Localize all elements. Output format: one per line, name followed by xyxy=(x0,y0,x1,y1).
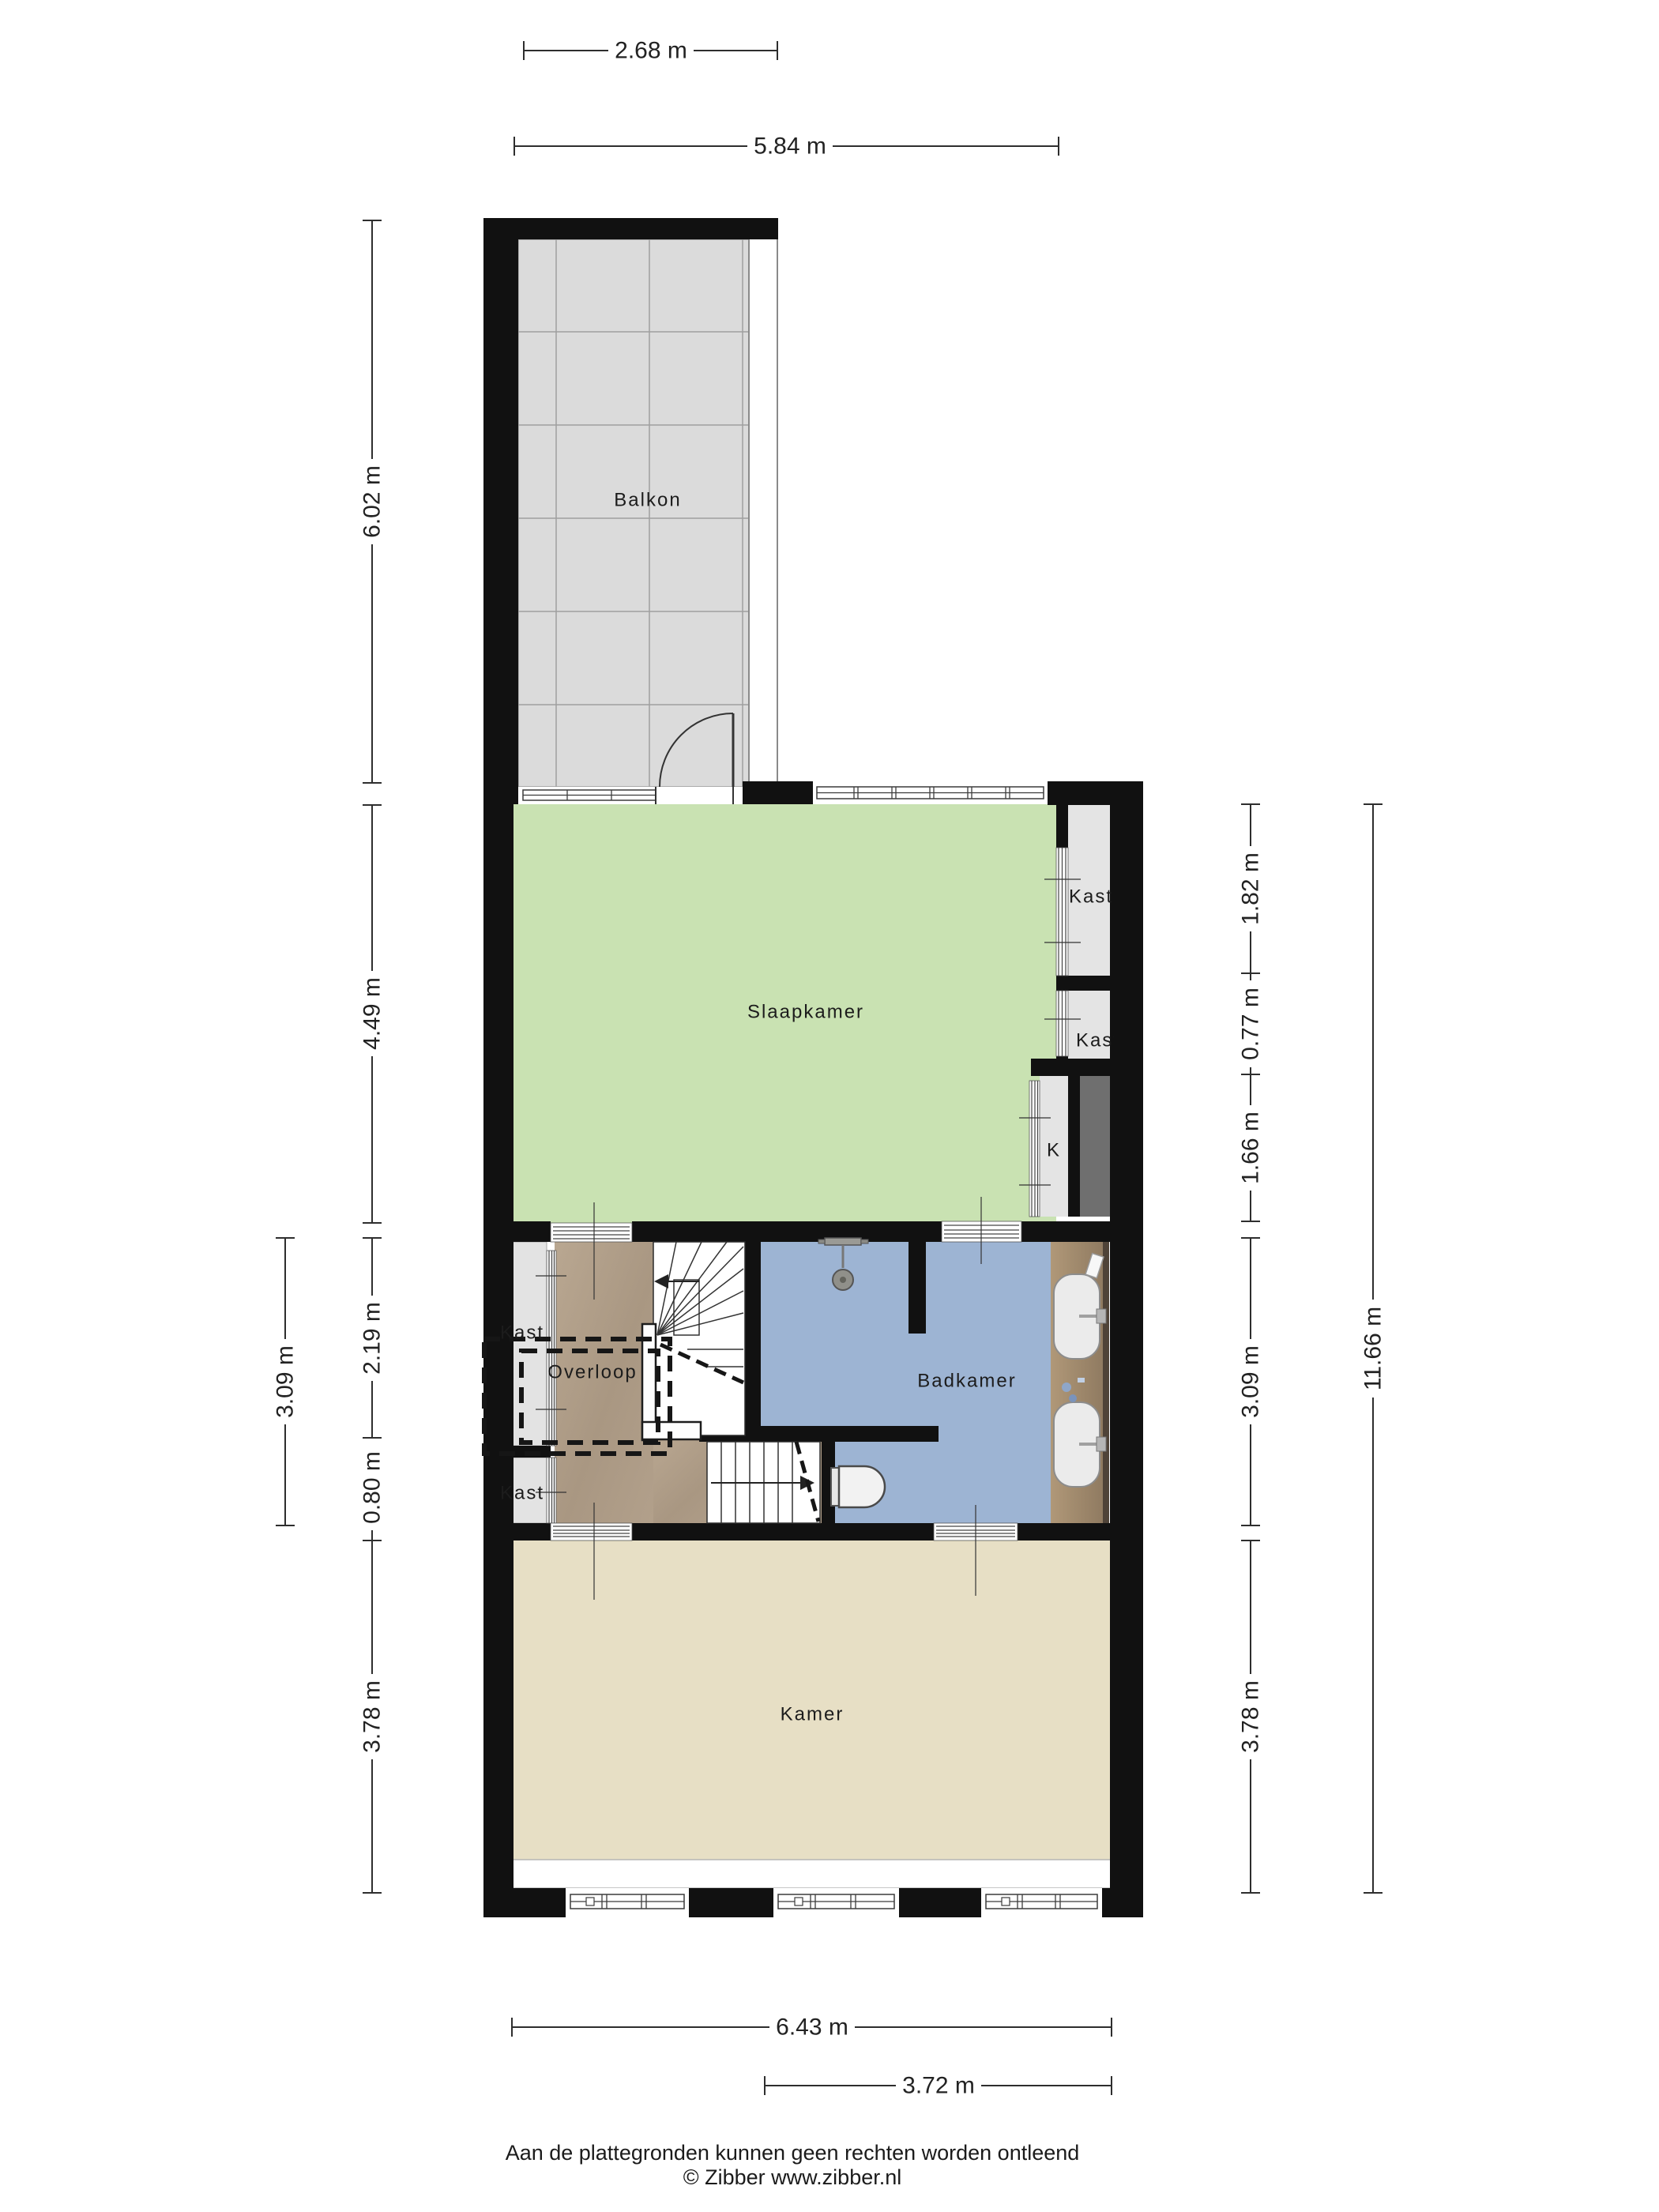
bedroom-north-window xyxy=(813,781,1048,804)
kamer-sill-band xyxy=(512,1860,1112,1888)
sink-bottom-icon xyxy=(1054,1402,1106,1487)
dim-right-bathroom: 3.09 m xyxy=(1238,1345,1264,1418)
footer-copyright: © Zibber www.zibber.nl xyxy=(683,2165,902,2189)
dim-bottom-total: 6.43 m xyxy=(776,2014,848,2041)
dim-left-bedroom: 4.49 m xyxy=(359,977,386,1050)
balcony-railing xyxy=(749,234,777,787)
floor-plan-svg: Balkon Slaapkamer Kast Kast K Kast Overl… xyxy=(0,0,1659,2212)
dim-left-balcony: 6.02 m xyxy=(359,465,386,538)
dim-top-balcony: 2.68 m xyxy=(615,38,687,64)
dim-bottom-partial: 3.72 m xyxy=(902,2073,975,2099)
label-k-closet: K xyxy=(1047,1140,1061,1161)
label-kast-left-bottom: Kast xyxy=(500,1483,544,1504)
kamer-area xyxy=(512,1540,1112,1860)
dim-top-bedroom: 5.84 m xyxy=(754,134,826,160)
closet-left-top-area xyxy=(512,1242,547,1446)
label-kast-left-top: Kast xyxy=(500,1322,544,1344)
label-kamer: Kamer xyxy=(781,1704,845,1725)
dim-left-landing: 2.19 m xyxy=(359,1302,386,1375)
label-kast-right-mid: Kast xyxy=(1076,1030,1120,1051)
footer-disclaimer: Aan de plattegronden kunnen geen rechten… xyxy=(506,2141,1080,2165)
stairs-upper-winder xyxy=(642,1242,745,1440)
closet-right-mid-area xyxy=(1068,991,1114,1064)
dim-left-room: 3.78 m xyxy=(359,1680,386,1753)
dim-right-closet-top: 1.82 m xyxy=(1238,852,1264,925)
dim-right-closet-bottom: 1.66 m xyxy=(1238,1112,1264,1184)
label-overloop: Overloop xyxy=(547,1362,637,1383)
kamer-south-windows xyxy=(566,1888,1102,1917)
stairs-lower-flight xyxy=(707,1442,820,1523)
shaft-area xyxy=(1080,1076,1114,1217)
dim-right-room: 3.78 m xyxy=(1238,1680,1264,1753)
label-slaapkamer: Slaapkamer xyxy=(747,1002,864,1023)
dim-left-closet: 0.80 m xyxy=(359,1451,386,1524)
dim-left-middle-total: 3.09 m xyxy=(273,1345,299,1418)
dim-right-total: 11.66 m xyxy=(1360,1307,1386,1390)
label-badkamer: Badkamer xyxy=(917,1371,1016,1392)
label-kast-right-top: Kast xyxy=(1069,886,1113,908)
label-balkon: Balkon xyxy=(614,490,681,511)
dim-right-closet-mid: 0.77 m xyxy=(1238,987,1264,1060)
sink-top-icon xyxy=(1054,1274,1106,1359)
toilet-icon xyxy=(831,1466,885,1507)
